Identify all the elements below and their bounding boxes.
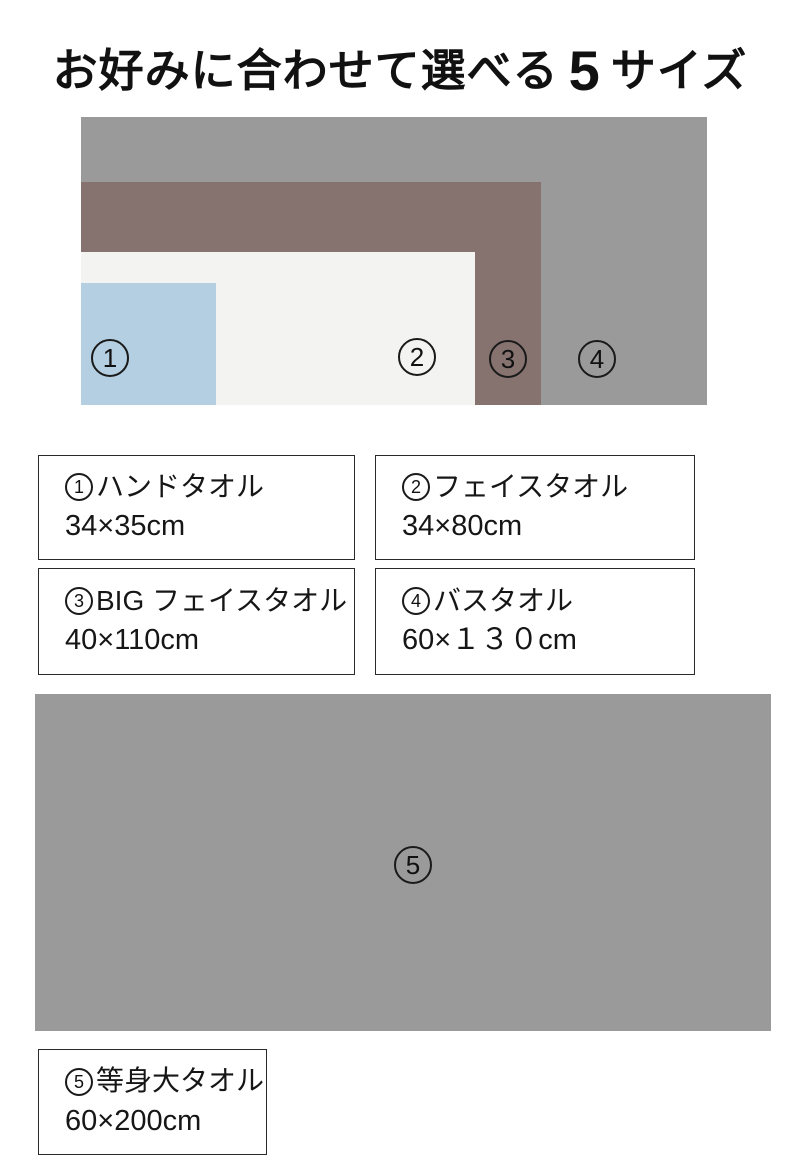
circled-number-4-icon: 4 — [402, 587, 430, 615]
size1-dimensions: 34×35cm — [65, 511, 354, 543]
circled-number-1-icon: 1 — [65, 473, 93, 501]
circled-number-3-marker: 3 — [489, 340, 527, 378]
size1-name: ハンドタオル — [96, 472, 264, 503]
size5-label-box: 5 等身大タオル 60×200cm — [38, 1049, 267, 1155]
circled-number-5-marker: 5 — [394, 846, 432, 884]
circled-number-2-marker: 2 — [398, 338, 436, 376]
title-prefix: お好みに合わせて選べる — [53, 45, 559, 96]
size3-name-row: 3 BIG フェイスタオル — [65, 586, 354, 617]
circled-number-2-icon: 2 — [402, 473, 430, 501]
size1-label-box: 1 ハンドタオル 34×35cm — [38, 455, 355, 560]
size5-name-row: 5 等身大タオル — [65, 1066, 266, 1097]
size2-name: フェイスタオル — [433, 472, 628, 503]
size2-dimensions: 34×80cm — [402, 511, 694, 543]
circled-number-4-marker: 4 — [578, 340, 616, 378]
size4-name-row: 4 バスタオル — [402, 586, 694, 617]
circled-number-3-icon: 3 — [65, 587, 93, 615]
size4-name: バスタオル — [433, 586, 573, 617]
size5-name: 等身大タオル — [96, 1066, 264, 1097]
size4-dimensions: 60×１３０cm — [402, 625, 694, 657]
size5-dimensions: 60×200cm — [65, 1106, 266, 1138]
size2-label-box: 2 フェイスタオル 34×80cm — [375, 455, 695, 560]
page-title: お好みに合わせて選べる5サイズ — [0, 34, 800, 103]
size1-name-row: 1 ハンドタオル — [65, 472, 354, 503]
title-number: 5 — [569, 39, 601, 102]
size4-label-box: 4 バスタオル 60×１３０cm — [375, 568, 695, 675]
size3-label-box: 3 BIG フェイスタオル 40×110cm — [38, 568, 355, 675]
circled-number-1-marker: 1 — [91, 339, 129, 377]
circled-number-5-icon: 5 — [65, 1068, 93, 1096]
size2-name-row: 2 フェイスタオル — [402, 472, 694, 503]
size3-name: BIG フェイスタオル — [96, 586, 347, 617]
size3-dimensions: 40×110cm — [65, 625, 354, 657]
towel-size-infographic: お好みに合わせて選べる5サイズ 1 2 3 4 1 ハンドタオル 34×35cm… — [0, 0, 800, 1169]
title-suffix: サイズ — [611, 45, 748, 96]
